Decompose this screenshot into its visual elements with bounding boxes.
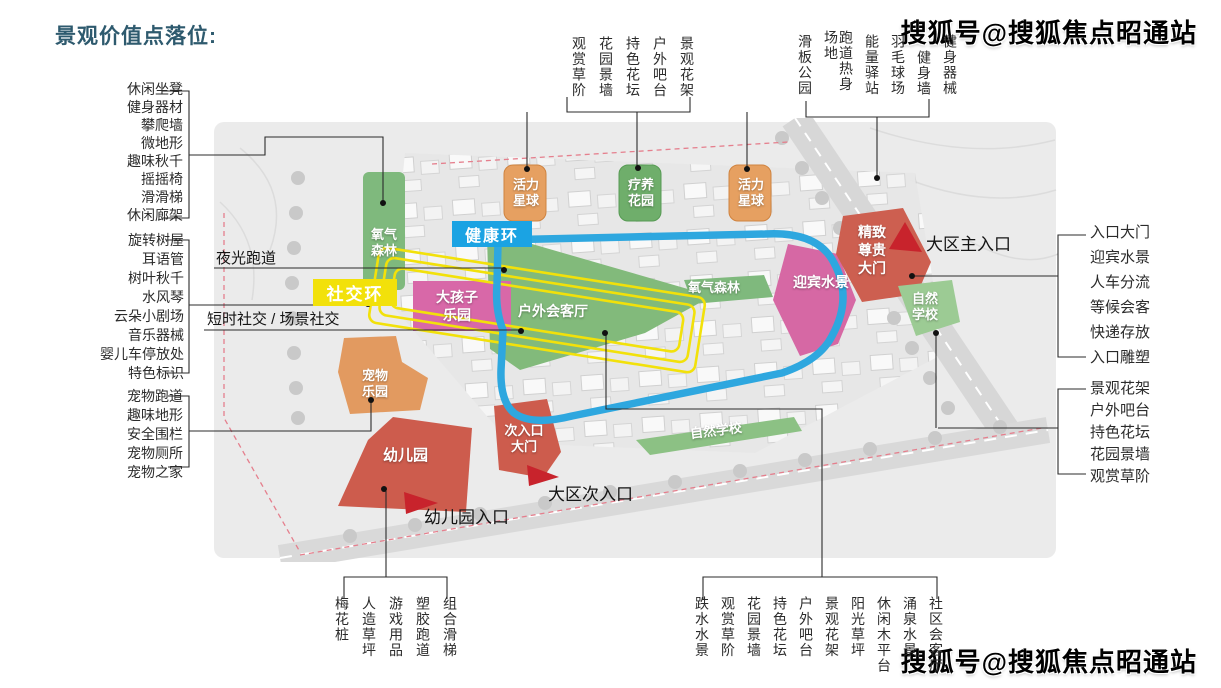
label-item: 安全围栏 — [55, 425, 183, 444]
label-item: 阳光草坪 — [850, 596, 865, 658]
zone-label-welcome-waterscape: 迎宾水景 — [793, 274, 849, 292]
label-item: 花园景墙 — [598, 36, 613, 98]
label-item: 健身器材 — [55, 98, 183, 116]
callout-main-entrance: 大区主入口 — [926, 230, 1011, 255]
social-ring-badge: 社交环 — [313, 279, 397, 306]
label-group-top-garden: 观赏草阶花园景墙持色花坛户外吧台景观花架 — [571, 36, 694, 98]
label-item: 户外吧台 — [1090, 400, 1150, 422]
label-item: 人车分流 — [1090, 270, 1150, 295]
zone-label-secondary-gate: 次入口大门 — [502, 423, 546, 456]
label-group-pet: 宠物跑道趣味地形安全围栏宠物厕所宠物之家 — [55, 387, 183, 482]
label-item: 户外吧台 — [798, 596, 813, 658]
label-item: 能量驿站 — [864, 34, 879, 96]
label-item: 花园景墙 — [1090, 444, 1150, 466]
zone-label-vitality-planet-1: 活力星球 — [510, 177, 542, 210]
callout-short-social: 短时社交 / 场景社交 — [207, 308, 340, 329]
label-item: 休闲木平台 — [876, 596, 891, 674]
label-item: 滑滑梯 — [55, 188, 183, 206]
label-item: 特色标识 — [28, 364, 184, 383]
label-item: 健身器械 — [942, 34, 957, 96]
label-item: 等候会客 — [1090, 295, 1150, 320]
entrance-arrows — [404, 222, 922, 514]
label-group-leisure-fitness: 休闲坐凳健身器材攀爬墙微地形趣味秋千摇摇椅滑滑梯休闲廊架 — [55, 80, 183, 224]
label-item: 宠物之家 — [55, 463, 183, 482]
label-item: 社区会客厅 — [928, 596, 943, 674]
zone-label-nature-school-right: 自然学校 — [910, 291, 940, 324]
label-item: 景观花架 — [679, 36, 694, 98]
label-item: 持色花坛 — [625, 36, 640, 98]
zone-label-therapy-garden: 疗养花园 — [625, 177, 657, 210]
label-item: 梅花桩 — [334, 596, 349, 643]
label-item: 趣味秋千 — [55, 152, 183, 170]
label-item: 迎宾水景 — [1090, 245, 1150, 270]
label-group-children-play: 旋转树屋耳语管树叶秋千水风琴云朵小剧场音乐器械婴儿车停放处特色标识 — [28, 231, 184, 383]
label-group-right-garden: 景观花架户外吧台持色花坛花园景墙观赏草阶 — [1090, 378, 1150, 488]
landscape-value-plan: 景观价值点落位: 搜狐号@搜狐焦点昭通站 搜狐号@搜狐焦点昭通站 休闲坐凳健身器… — [0, 0, 1221, 688]
label-item: 涌泉水景 — [902, 596, 917, 658]
label-item: 宠物厕所 — [55, 444, 183, 463]
label-item: 攀爬墙 — [55, 116, 183, 134]
zone-label-big-kids-park: 大孩子乐园 — [432, 289, 482, 324]
main-entrance-arrow-icon — [889, 222, 922, 252]
label-item: 户外吧台 — [652, 36, 667, 98]
label-item: 摇摇椅 — [55, 170, 183, 188]
label-item: 观赏草阶 — [720, 596, 735, 658]
label-item: 景观花架 — [1090, 378, 1150, 400]
label-item: 观赏草阶 — [571, 36, 586, 98]
label-item: 持色花坛 — [772, 596, 787, 658]
label-item: 游戏用品 — [388, 596, 403, 658]
label-group-top-sports: 滑板公园跑道热身场地能量驿站羽毛球场健身墙健身器械 — [797, 30, 957, 96]
label-item: 水风琴 — [28, 288, 184, 307]
page-title: 景观价值点落位: — [55, 20, 217, 50]
label-item: 持色花坛 — [1090, 422, 1150, 444]
label-item: 人造草坪 — [361, 596, 376, 658]
label-item: 休闲廊架 — [55, 206, 183, 224]
connector-lines — [162, 91, 1086, 599]
label-item: 景观花架 — [824, 596, 839, 658]
label-item: 云朵小剧场 — [28, 307, 184, 326]
callout-sub-entrance: 大区次入口 — [548, 480, 633, 505]
label-item: 塑胶跑道 — [415, 596, 430, 658]
label-item: 音乐器械 — [28, 326, 184, 345]
zone-label-kindergarten: 幼儿园 — [383, 447, 428, 466]
label-group-kindergarten-facilities: 梅花桩人造草坪游戏用品塑胶跑道组合滑梯 — [334, 596, 457, 658]
label-item: 微地形 — [55, 134, 183, 152]
label-item: 跌水水景 — [694, 596, 709, 658]
label-group-bottom-garden: 跌水水景观赏草阶花园景墙持色花坛户外吧台景观花架阳光草坪休闲木平台涌泉水景社区会… — [694, 596, 943, 674]
watermark-bottom: 搜狐号@搜狐焦点昭通站 — [901, 642, 1197, 679]
label-item: 趣味地形 — [55, 406, 183, 425]
zone-label-pet-park: 宠物乐园 — [360, 368, 390, 401]
zone-label-outdoor-lounge: 户外会客厅 — [518, 303, 588, 321]
label-item: 健身墙 — [916, 50, 931, 97]
label-item: 组合滑梯 — [442, 596, 457, 658]
label-item: 树叶秋千 — [28, 269, 184, 288]
label-item: 滑板公园 — [797, 34, 812, 96]
label-group-main-entrance: 入口大门迎宾水景人车分流等候会客快递存放入口雕塑 — [1090, 220, 1150, 370]
label-item: 跑道热身场地 — [823, 30, 853, 96]
label-item: 耳语管 — [28, 250, 184, 269]
label-item: 旋转树屋 — [28, 231, 184, 250]
connector-dots — [365, 165, 939, 492]
label-item: 观赏草阶 — [1090, 466, 1150, 488]
label-item: 婴儿车停放处 — [28, 345, 184, 364]
zone-label-main-gate: 精致尊贵大门 — [855, 223, 889, 277]
label-item: 宠物跑道 — [55, 387, 183, 406]
zone-label-oxygen-forest-mid: 氧气森林 — [688, 280, 740, 296]
label-item: 入口雕塑 — [1090, 345, 1150, 370]
label-item: 快递存放 — [1090, 320, 1150, 345]
health-ring-badge: 健康环 — [452, 221, 532, 247]
callout-kindergarten-entrance: 幼儿园入口 — [424, 503, 509, 528]
zone-label-oxygen-forest-left: 氧气森林 — [369, 227, 399, 260]
label-item: 入口大门 — [1090, 220, 1150, 245]
zone-label-vitality-planet-2: 活力星球 — [735, 177, 767, 210]
label-item: 花园景墙 — [746, 596, 761, 658]
label-item: 羽毛球场 — [890, 34, 905, 96]
callout-night-track: 夜光跑道 — [216, 247, 276, 268]
label-item: 休闲坐凳 — [55, 80, 183, 98]
